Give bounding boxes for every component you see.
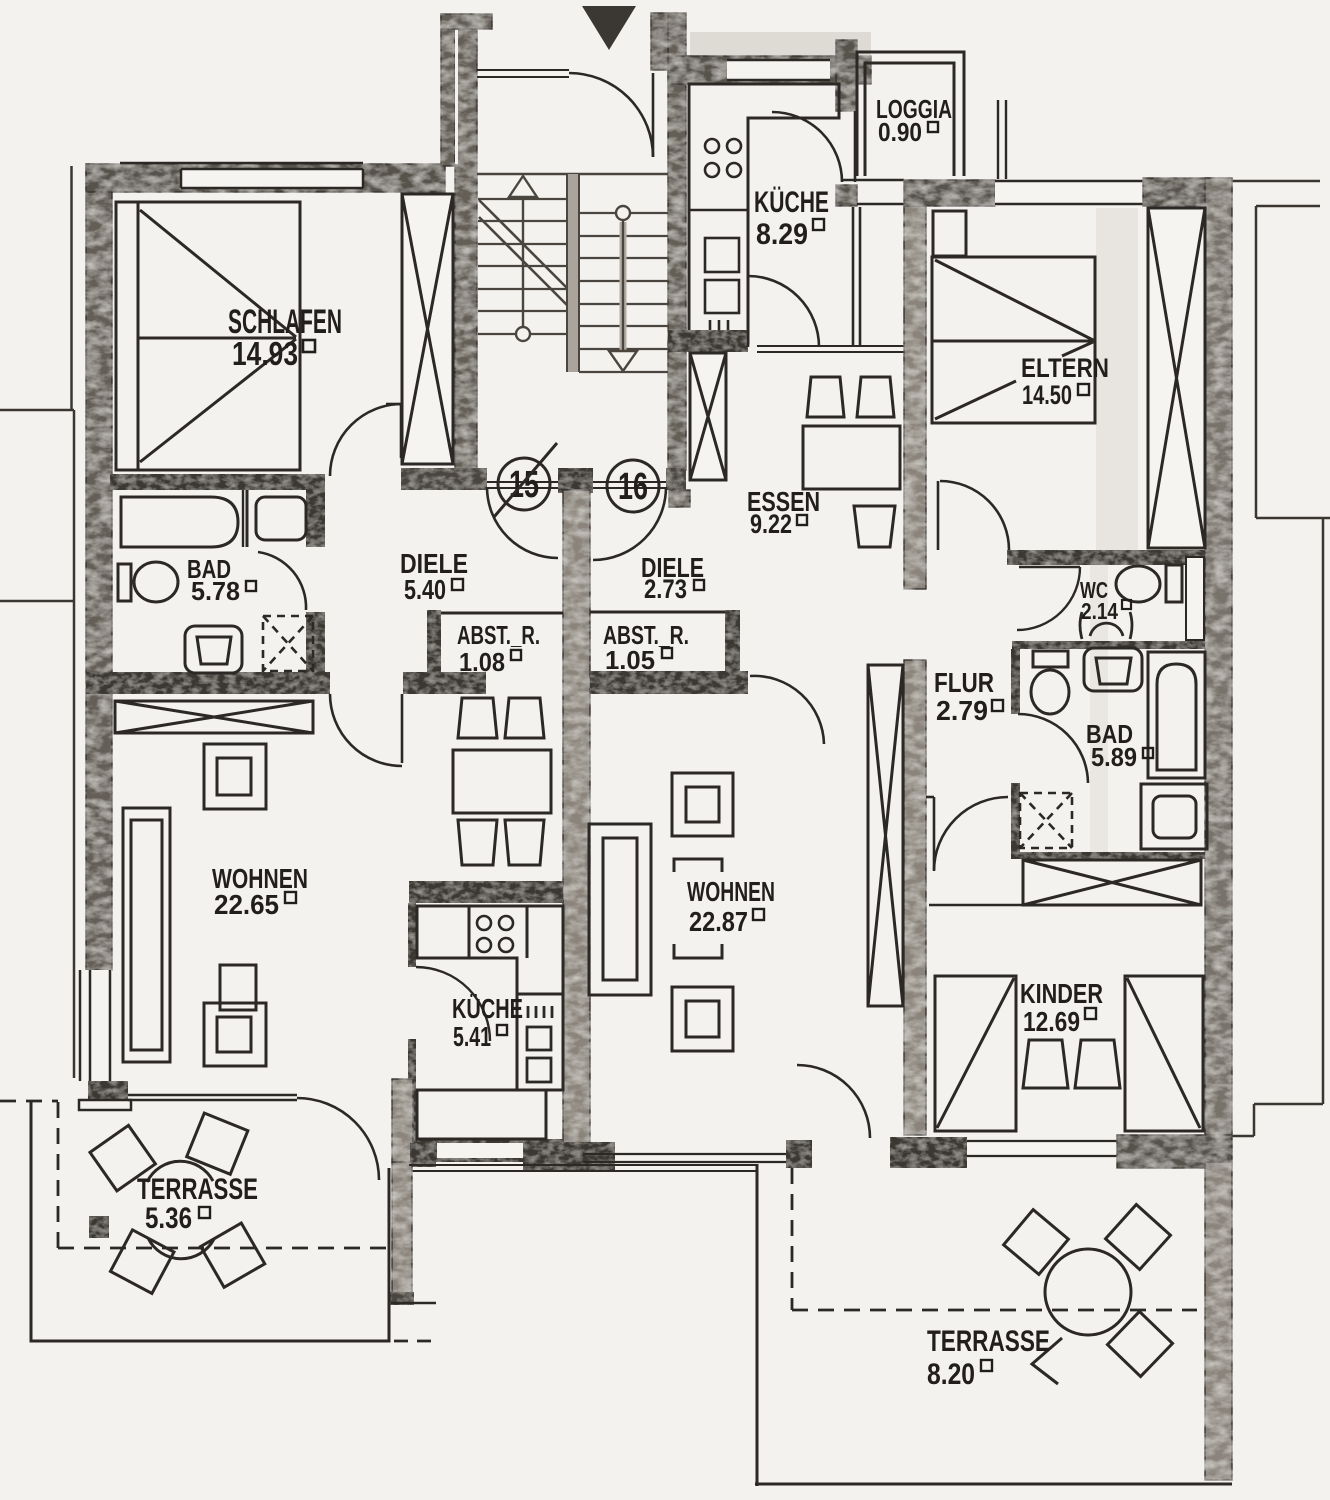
svg-text:14.93: 14.93: [232, 335, 298, 372]
svg-text:16: 16: [618, 466, 648, 508]
svg-text:9.22: 9.22: [750, 509, 792, 539]
svg-text:5.36: 5.36: [145, 1202, 192, 1235]
svg-text:1.05: 1.05: [605, 645, 655, 675]
svg-text:8.20: 8.20: [927, 1358, 975, 1391]
svg-text:14.50: 14.50: [1022, 380, 1072, 410]
svg-text:12.69: 12.69: [1023, 1006, 1080, 1037]
svg-text:1.08: 1.08: [459, 647, 505, 677]
svg-text:5.78: 5.78: [191, 576, 240, 606]
svg-text:5.40: 5.40: [404, 574, 446, 605]
svg-text:5.41: 5.41: [453, 1021, 491, 1052]
svg-text:2.79: 2.79: [936, 695, 988, 726]
svg-text:5.89: 5.89: [1091, 742, 1137, 772]
svg-text:8.29: 8.29: [756, 218, 808, 251]
svg-text:KÜCHE: KÜCHE: [754, 186, 829, 219]
svg-text:22.65: 22.65: [214, 889, 279, 920]
svg-text:FLUR: FLUR: [934, 667, 994, 698]
svg-text:22.87: 22.87: [689, 906, 748, 937]
svg-text:KÜCHE: KÜCHE: [452, 993, 523, 1024]
svg-text:ABST._R.: ABST._R.: [457, 620, 540, 650]
svg-text:2.73: 2.73: [644, 574, 687, 604]
svg-text:0.90: 0.90: [878, 117, 922, 147]
svg-text:TERRASSE: TERRASSE: [927, 1325, 1050, 1358]
svg-text:2.14: 2.14: [1081, 598, 1118, 624]
svg-text:ELTERN: ELTERN: [1021, 353, 1109, 383]
svg-text:KINDER: KINDER: [1020, 978, 1103, 1009]
svg-text:WOHNEN: WOHNEN: [687, 876, 775, 907]
